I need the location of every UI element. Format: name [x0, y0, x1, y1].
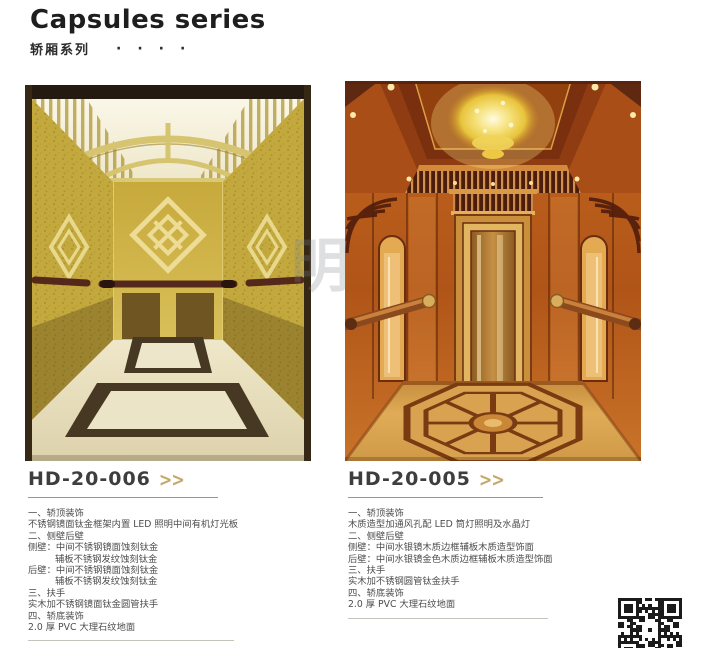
gold-cabin-illustration	[25, 85, 311, 461]
spec-line: 三、扶手	[28, 588, 328, 599]
spec-line: 侧壁：中间水银镜木质边框辅板木质造型饰面	[348, 542, 648, 553]
spec-list: 一、轿顶装饰不锈钢镜面钛金框架内置 LED 照明中间有机灯光板二、侧壁后壁侧壁：…	[28, 508, 328, 633]
spec-line: 一、轿顶装饰	[28, 508, 328, 519]
section-divider	[28, 640, 234, 641]
spec-line: 辅板不锈钢发纹蚀刻钛金	[28, 576, 328, 587]
section-divider	[348, 618, 548, 619]
spec-line: 二、侧壁后壁	[348, 531, 648, 542]
model-underline	[28, 497, 218, 498]
spec-line: 一、轿顶装饰	[348, 508, 648, 519]
spec-line: 辅板不锈钢发纹蚀刻钛金	[28, 554, 328, 565]
spec-line: 三、扶手	[348, 565, 648, 576]
spec-line: 二、侧壁后壁	[28, 531, 328, 542]
subtitle-dots: ····	[100, 42, 185, 56]
spec-line: 后壁：中间水银镜金色木质边框辅板木质造型饰面	[348, 554, 648, 565]
subtitle-dot: ·	[137, 42, 142, 56]
spec-line: 四、轿底装饰	[348, 588, 648, 599]
spec-line: 后壁：中间不锈钢镜面蚀刻钛金	[28, 565, 328, 576]
page-title: Capsules series	[30, 4, 266, 36]
qr-code-icon	[618, 598, 682, 648]
spec-line: 实木加不锈钢镜面钛金圆管扶手	[28, 599, 328, 610]
cabin-right-frame	[304, 85, 311, 461]
subtitle-dot: ·	[116, 42, 121, 56]
page-subtitle-cn: 轿厢系列	[30, 39, 90, 58]
spec-line: 四、轿底装饰	[28, 611, 328, 622]
subtitle-dot: ·	[180, 42, 185, 56]
page-subtitle-row: 轿厢系列 ····	[30, 39, 266, 58]
model-row: HD-20-005 >>	[348, 468, 648, 490]
catalog-page: Capsules series 轿厢系列 ····	[0, 0, 714, 648]
spec-line: 实木加不锈钢圆管钛金扶手	[348, 576, 648, 587]
cabin-top-edge	[345, 81, 641, 84]
cabin-top-frame	[25, 85, 311, 99]
page-header: Capsules series 轿厢系列 ····	[30, 4, 266, 58]
wood-cabin-illustration	[345, 81, 641, 461]
cabin-left-frame	[25, 85, 32, 461]
center-door	[449, 189, 537, 393]
spec-line: 2.0 厚 PVC 大理石纹地面	[348, 599, 648, 610]
handrail	[35, 280, 301, 284]
spec-line: 不锈钢镜面钛金框架内置 LED 照明中间有机灯光板	[28, 519, 328, 530]
model-row: HD-20-006 >>	[28, 468, 328, 490]
crystal-chandelier	[431, 81, 555, 169]
spec-line: 侧壁：中间不锈钢镜面蚀刻钛金	[28, 542, 328, 553]
spec-list: 一、轿顶装饰木质造型加通风孔配 LED 筒灯照明及水晶灯二、侧壁后壁侧壁：中间水…	[348, 508, 648, 611]
spec-line: 木质造型加通风孔配 LED 筒灯照明及水晶灯	[348, 519, 648, 530]
double-chevron-icon: >>	[159, 468, 184, 490]
product-info-hd-20-005: HD-20-005 >> 一、轿顶装饰木质造型加通风孔配 LED 筒灯照明及水晶…	[348, 468, 648, 619]
model-number: HD-20-005	[348, 468, 471, 490]
double-chevron-icon: >>	[479, 468, 504, 490]
subtitle-dot: ·	[159, 42, 164, 56]
model-underline	[348, 497, 543, 498]
spec-line: 2.0 厚 PVC 大理石纹地面	[28, 622, 328, 633]
product-info-hd-20-006: HD-20-006 >> 一、轿顶装饰不锈钢镜面钛金框架内置 LED 照明中间有…	[28, 468, 328, 641]
product-image-hd-20-005	[345, 81, 641, 461]
model-number: HD-20-006	[28, 468, 151, 490]
product-image-hd-20-006	[25, 85, 311, 461]
